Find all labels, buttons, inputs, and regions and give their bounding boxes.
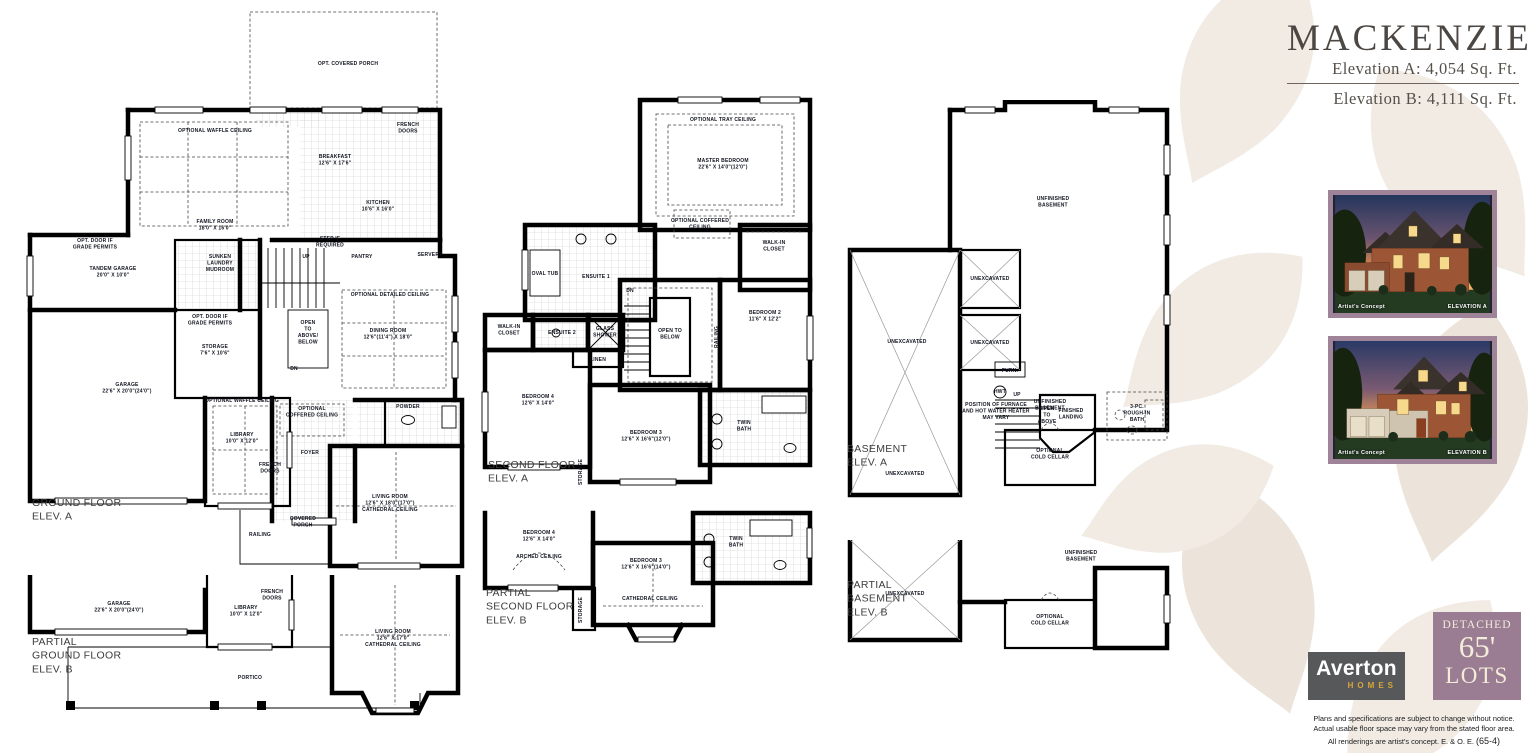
plan-label: UP <box>302 254 310 260</box>
plan-label: STEP IFREQUIRED <box>316 236 344 249</box>
second-floor-b-plan: BEDROOM 412'6" X 14'0"ARCHED CEILINGBEDR… <box>478 508 823 653</box>
plan-label: LIVING ROOM12'6" X 18'0"(17'0")CATHEDRAL… <box>362 494 418 513</box>
plan-label: OPTIONALCOLD CELLAR <box>1031 448 1069 461</box>
plan-label: FRENCHDOORS <box>259 462 281 475</box>
plan-label: PARTIALGROUND FLOORELEV. B <box>32 636 121 675</box>
plan-label: UNEXCAVATED <box>970 276 1009 282</box>
plan-label: BREAKFAST12'6" X 17'6" <box>319 154 352 167</box>
basement-b-labels: UNFINISHEDBASEMENTUNEXCAVATEDOPTIONALCOL… <box>847 550 1097 627</box>
plan-label: OPTIONALCOLD CELLAR <box>1031 614 1069 627</box>
plan-label: OPENTOABOVE/BELOW <box>298 320 319 346</box>
elevation-b-illustration <box>1333 341 1492 459</box>
elevation-a-caption: ELEVATION A <box>1448 304 1487 310</box>
plan-label: UNFINISHEDBASEMENT <box>1065 550 1098 563</box>
second-floor-a-plan: OPTIONAL TRAY CEILINGMASTER BEDROOM22'6"… <box>478 92 823 487</box>
badge-lots-text: LOTS <box>1433 664 1521 687</box>
elevation-a-illustration <box>1333 195 1492 313</box>
plan-label: 3-PC.ROUGH-INBATH <box>1124 404 1151 423</box>
plan-label: FRENCHDOORS <box>397 122 419 135</box>
plan-label: UNEXCAVATED <box>887 339 926 345</box>
plan-label: FOYER <box>301 450 319 456</box>
plan-label: ENSUITE 2 <box>548 330 576 336</box>
plan-label: BASEMENTELEV. A <box>847 443 907 469</box>
plan-label: FAMILY ROOM18'0" X 16'0" <box>197 219 234 232</box>
plan-label: DN <box>290 366 298 372</box>
plan-label: OPTIONAL DETAILED CEILING <box>351 292 429 298</box>
logo-division-text: HOMES <box>1316 681 1397 690</box>
elevation-b-rendering: Artist's Concept ELEVATION B <box>1328 336 1497 464</box>
plan-code: (65-4) <box>1476 736 1500 746</box>
plan-label: BEDROOM 211'6" X 12'2" <box>749 310 782 323</box>
plan-label: UNFINISHEDBASEMENT <box>1037 196 1070 209</box>
plan-label: OPT. DOOR IFGRADE PERMITS <box>73 238 118 251</box>
title-divider <box>1287 83 1519 84</box>
plan-label: STORAGE7'6" X 10'6" <box>200 344 230 357</box>
disclaimer-line-1: Plans and specifications are subject to … <box>1298 714 1530 724</box>
plan-label: OPT. DOOR IFGRADE PERMITS <box>188 314 233 327</box>
plan-label: RAILING <box>249 532 271 538</box>
basement-a-plan: UNFINISHEDBASEMENTUNEXCAVATEDUNEXCAVATED… <box>845 100 1175 500</box>
badge-lot-size-text: 65' <box>1433 631 1521 664</box>
plan-label: PANTRY <box>351 254 373 260</box>
disclaimer-text: Plans and specifications are subject to … <box>1298 714 1530 747</box>
ground-floor-a-plan: OPT. COVERED PORCHBREAKFAST12'6" X 17'6"… <box>10 8 465 570</box>
plan-label: LIBRARY10'0" X 12'0" <box>230 605 263 618</box>
basement-a-labels: UNFINISHEDBASEMENTUNEXCAVATEDUNEXCAVATED… <box>847 196 1151 477</box>
plan-label: OPTIONAL WAFFLE CEILING <box>178 128 252 134</box>
elevation-b-sqft: Elevation B: 4,111 Sq. Ft. <box>1287 87 1519 109</box>
title-block: MACKENZIE Elevation A: 4,054 Sq. Ft. Ele… <box>1287 20 1519 109</box>
ground-floor-a-drawing <box>27 12 462 569</box>
plan-label: PARTIALBASEMENTELEV. B <box>847 579 907 618</box>
plan-label: TWINBATH <box>737 420 752 433</box>
plan-label: KITCHEN10'6" X 16'0" <box>362 200 395 213</box>
plan-label: BEDROOM 312'6" X 16'6"(12'0") <box>621 430 670 443</box>
plan-label: BEDROOM 412'6" X 14'0" <box>522 394 555 407</box>
logo-brand-text: Averton <box>1316 657 1397 680</box>
plan-label: GARAGE22'6" X 20'0"(24'0") <box>94 601 143 614</box>
disclaimer-line-2: Actual usable floor space may vary from … <box>1298 724 1530 734</box>
plan-label: LINEN <box>590 357 606 363</box>
plan-label: OVAL TUB <box>532 271 559 277</box>
brochure-page: { "title_block": { "name": "MACKENZIE", … <box>0 0 1531 753</box>
plan-label: OPEN TOBELOW <box>658 328 682 341</box>
plan-label: COVEREDPORCH <box>290 516 316 529</box>
plan-label: OPTIONAL TRAY CEILING <box>690 117 756 123</box>
plan-label: GROUND FLOORELEV. A <box>32 497 121 523</box>
plan-label: LIVING ROOM12'6" X 17'0"CATHEDRAL CEILIN… <box>365 629 421 648</box>
plan-label: TANDEM GARAGE20'0" X 10'0" <box>90 266 137 279</box>
plan-label: WALK-INCLOSET <box>763 240 786 253</box>
plan-label: POWDER <box>396 404 420 410</box>
plan-label: PORTICO <box>238 675 262 681</box>
plan-label: PARTIALSECOND FLOORELEV. B <box>486 587 574 626</box>
plan-label: FURN. <box>1002 368 1019 374</box>
plan-label: GLASSSHOWER <box>593 326 617 339</box>
plan-label: WALK-INCLOSET <box>498 324 521 337</box>
ground-floor-b-plan: GARAGE22'6" X 20'0"(24'0")PARTIALGROUND … <box>10 575 465 745</box>
plan-label: ARCHED CEILING <box>516 554 562 560</box>
plan-label: UNEXCAVATED <box>885 471 924 477</box>
plan-label: OPTIONAL WAFFLE CEILING <box>205 398 279 404</box>
plan-label: UNFINISHEDBASEMENT <box>1034 399 1067 412</box>
disclaimer-line-3: All renderings are artist's concept. E. … <box>1298 735 1530 748</box>
plan-label: CATHEDRAL CEILING <box>622 596 678 602</box>
plan-label: GARAGE22'6" X 20'0"(24'0") <box>102 382 151 395</box>
plan-label: SECOND FLOORELEV. A <box>488 459 576 485</box>
plan-label: MASTER BEDROOM22'6" X 14'0"(12'0") <box>697 158 748 171</box>
second-floor-a-drawing <box>482 97 813 485</box>
basement-b-plan: UNFINISHEDBASEMENTUNEXCAVATEDOPTIONALCOL… <box>845 540 1175 665</box>
averton-homes-logo: Averton HOMES <box>1308 652 1405 700</box>
basement-a-drawing <box>850 102 1170 495</box>
elevation-b-caption: ELEVATION B <box>1448 450 1487 456</box>
plan-label: DINING ROOM12'6"(11'4") X 18'0" <box>364 328 413 341</box>
plan-label: SUNKENLAUNDRYMUDROOM <box>206 254 234 273</box>
plan-label: BEDROOM 312'6" X 16'6"(14'0") <box>621 558 670 571</box>
elevation-a-rendering: Artist's Concept ELEVATION A <box>1328 190 1497 318</box>
plan-label: RAILING <box>714 326 720 348</box>
plan-label: POSITION OF FURNACEAND HOT WATER HEATERM… <box>962 402 1030 421</box>
plan-label: TWINBATH <box>729 536 744 549</box>
detached-lots-badge: DETACHED 65' LOTS <box>1433 612 1521 700</box>
plan-label: SERVERY <box>417 252 442 258</box>
plan-label: FRENCHDOORS <box>261 589 283 602</box>
plan-label: STORAGE <box>578 597 584 623</box>
artist-concept-caption-b: Artist's Concept <box>1338 450 1385 456</box>
plan-label: ENSUITE 1 <box>582 274 610 280</box>
model-name: MACKENZIE <box>1287 20 1519 57</box>
plan-label: LIBRARY10'0" X 12'0" <box>226 432 259 445</box>
plan-label: UP <box>1013 392 1021 398</box>
plan-label: HWT <box>994 389 1006 395</box>
plan-label: BEDROOM 412'6" X 14'0" <box>523 530 556 543</box>
plan-label: DN <box>626 288 634 294</box>
elevation-a-sqft: Elevation A: 4,054 Sq. Ft. <box>1287 57 1519 79</box>
artist-concept-caption-a: Artist's Concept <box>1338 304 1385 310</box>
plan-label: STORAGE <box>578 459 584 485</box>
plan-label: OPT. COVERED PORCH <box>318 61 378 67</box>
plan-label: UNEXCAVATED <box>970 340 1009 346</box>
